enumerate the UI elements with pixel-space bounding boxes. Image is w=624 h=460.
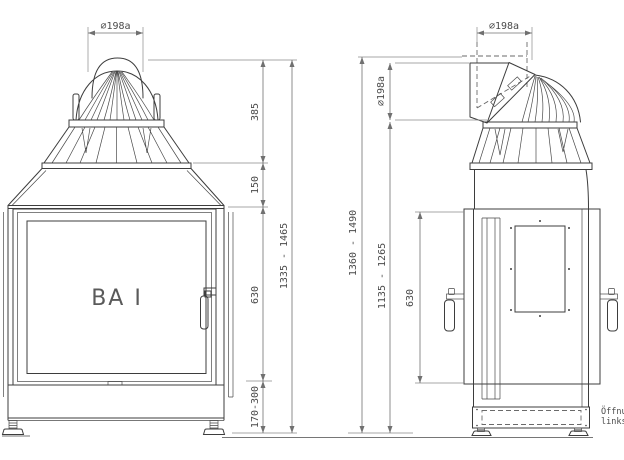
front-body-edges bbox=[8, 206, 224, 421]
front-dim-base: 170-300 bbox=[250, 386, 261, 428]
side-skirt-outline bbox=[472, 128, 590, 163]
note-line-1: Öffnu bbox=[601, 406, 624, 417]
front-flue-diameter-label: ⌀198a bbox=[100, 21, 130, 32]
ground-line bbox=[2, 436, 593, 438]
side-base-vent bbox=[482, 411, 581, 425]
side-adapter-clamp-2 bbox=[508, 77, 522, 90]
front-foot-left bbox=[3, 421, 24, 435]
front-skirt-flange bbox=[42, 163, 191, 169]
side-dome-flange bbox=[483, 122, 577, 128]
side-skirt-ribs bbox=[479, 128, 581, 163]
side-foot-front bbox=[472, 428, 491, 436]
front-dim-dome: 385 bbox=[250, 103, 261, 121]
front-hood-inner-edges bbox=[12, 171, 221, 206]
front-plinth bbox=[8, 385, 224, 418]
front-handle-grip bbox=[201, 296, 209, 329]
side-dim-door: 630 bbox=[405, 289, 416, 307]
side-door-strip bbox=[482, 218, 500, 399]
side-dome-ribs bbox=[522, 76, 574, 122]
front-dim-door: 630 bbox=[250, 286, 261, 304]
front-foot-right bbox=[204, 421, 225, 435]
side-flue-vertical-ghost bbox=[462, 42, 532, 108]
front-hood bbox=[8, 169, 224, 206]
side-view bbox=[445, 42, 618, 436]
brand-label: BA I bbox=[91, 286, 143, 311]
side-dim-total: 1360 - 1490 bbox=[348, 210, 359, 276]
front-view: BA I bbox=[3, 58, 234, 435]
front-dome-flange bbox=[69, 120, 164, 127]
side-dim-outlet-floor: 1135 - 1265 bbox=[377, 243, 388, 309]
side-dimensions: ⌀198a ⌀198a 1360 - 1490 1135 - 1265 630 bbox=[348, 21, 532, 433]
side-panel bbox=[464, 209, 600, 384]
side-handle-front bbox=[445, 289, 465, 332]
front-dimensions: ⌀198a 385 150 630 170-300 1335 - 1465 bbox=[88, 21, 297, 433]
technical-drawing-page: { "front_view": { "brand_label": "BA I",… bbox=[0, 0, 624, 460]
fireplace-technical-drawing: BA I bbox=[0, 0, 624, 460]
side-base-screws bbox=[476, 409, 587, 427]
front-dim-total: 1335 - 1465 bbox=[279, 223, 290, 289]
side-body-top bbox=[475, 170, 589, 210]
side-skirt-flange bbox=[470, 163, 592, 170]
side-flue-diameter-top-label: ⌀198a bbox=[489, 21, 519, 32]
side-foot-back bbox=[569, 428, 588, 436]
front-door-latch bbox=[108, 382, 122, 386]
side-flue-diameter-rear-label: ⌀198a bbox=[376, 76, 387, 106]
side-flue-adapter bbox=[470, 63, 535, 124]
front-skirt-ribs bbox=[52, 127, 181, 163]
front-dome-cap bbox=[92, 58, 143, 98]
front-dome-ear-right bbox=[154, 94, 160, 120]
side-access-panel-screws bbox=[510, 220, 570, 317]
door-opening-note: Öffnu links o bbox=[601, 406, 624, 427]
front-hood-bottom bbox=[8, 206, 224, 209]
side-access-panel bbox=[515, 226, 565, 312]
front-dim-hood: 150 bbox=[250, 176, 261, 194]
side-handle-back bbox=[600, 289, 618, 332]
side-body-edges bbox=[474, 209, 589, 407]
note-line-2: links o bbox=[601, 417, 624, 427]
